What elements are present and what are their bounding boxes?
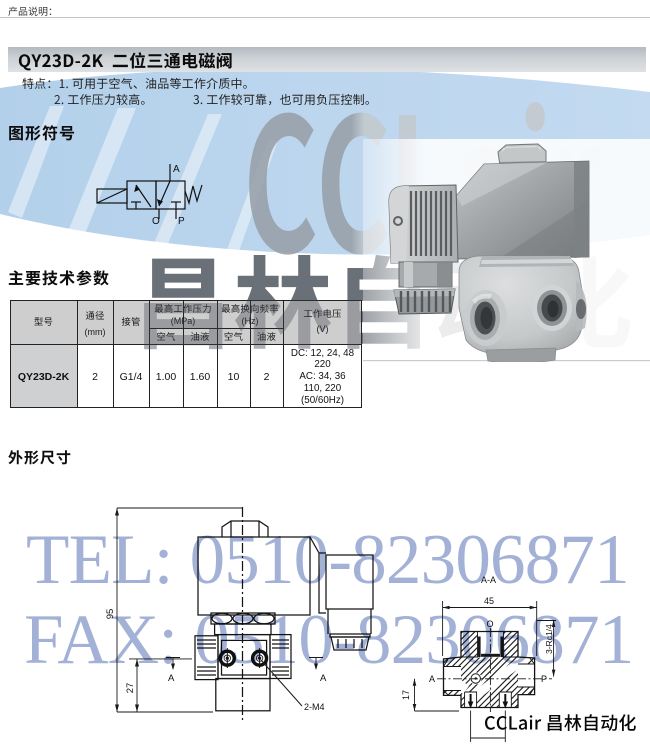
svg-text:17: 17 — [401, 690, 411, 700]
